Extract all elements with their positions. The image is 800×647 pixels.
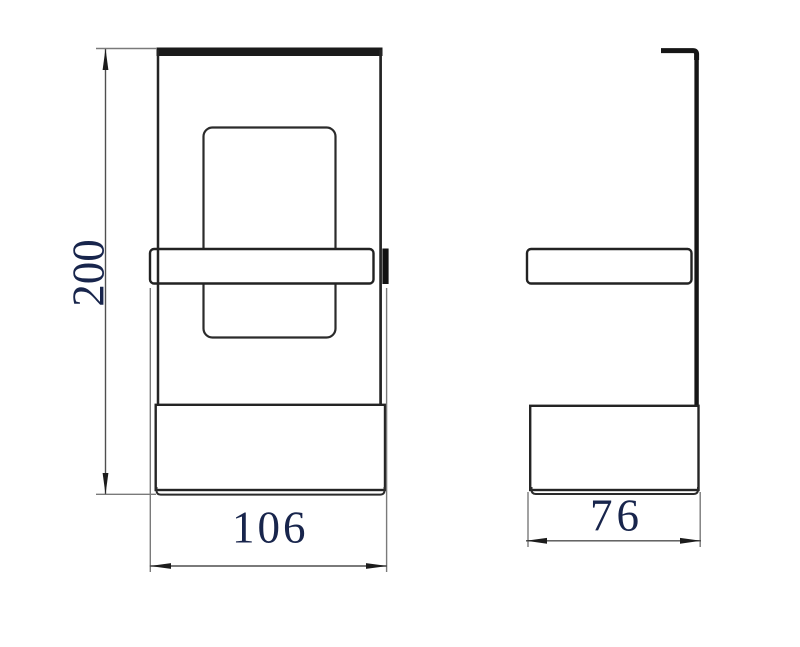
svg-text:76: 76 bbox=[590, 491, 643, 541]
svg-text:200: 200 bbox=[64, 239, 114, 307]
svg-text:106: 106 bbox=[232, 503, 309, 553]
